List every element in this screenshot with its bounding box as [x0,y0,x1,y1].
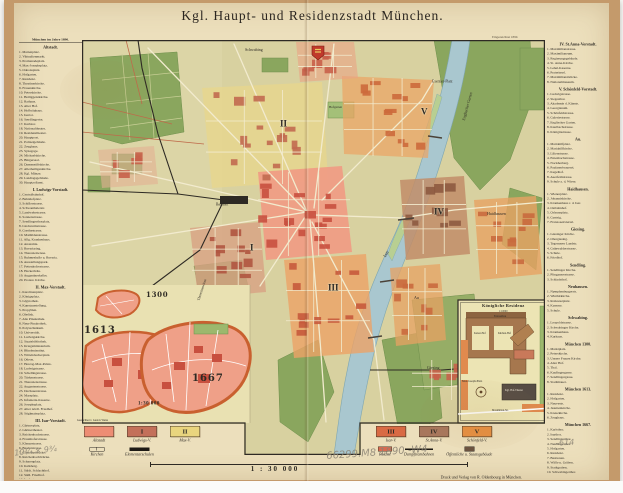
legend-label: Isar-V. [386,438,397,443]
legend-swatch: IIIIsar-V. [376,426,406,443]
legend-label: Ludwigs-V. [133,438,151,443]
fold-crease [304,0,309,481]
map-title: Kgl. Haupt- und Residenzstadt München. [120,8,505,24]
map-label: 1:10000 [499,310,508,313]
map-label: Gezeichnet v. Gustav Weiss [77,419,108,422]
legend-color-box: III [376,426,406,437]
legend-label: St.Anna-V. [426,438,443,443]
district-numeral: V [421,108,428,117]
index-entry: 8. Nationalmuseum. [547,80,609,85]
street-index-left: München im Jahre 1890.Altstadt.1. Marien… [19,37,82,479]
index-entry: 13. Isarlust. [19,478,82,480]
index-entry: 6. Zeughaus. [547,416,609,421]
index-header: München im Jahre 1890. [19,37,82,43]
scale-text: 1 : 30 000 [200,465,350,473]
map-label: 1300 [146,292,168,299]
district-numeral: II [280,120,287,129]
map-label: 1667 [192,374,224,384]
map-label: Kaiser-Hof [474,332,486,335]
pubbox-icon [464,447,474,452]
index-entry: 4. Kurhaus. [547,335,609,340]
map-label: Giesing [427,366,439,370]
legend-label: Elementarschulen [125,452,154,457]
map-label: Exerzier-Platz [432,80,453,84]
map-label: Königliche Residenz [482,304,524,308]
district-numeral: I [250,244,254,253]
legend-color-box [84,426,114,437]
map-label: Au [414,296,419,300]
legend-swatch: VSchönfeld-V. [462,426,492,443]
pencil-annotation: -614 [556,439,575,448]
index-entry: 7. Franzosenviertel. [547,220,609,225]
city-map-artwork [82,40,545,455]
legend-label: Max-V. [179,438,190,443]
legend-label: Altstadt [93,438,105,443]
map-label: Haidhausen [487,212,506,216]
map-sheet-photo: Kgl. Haupt- und Residenzstadt München. E… [0,0,623,493]
legend-swatch: IVSt.Anna-V. [419,426,449,443]
map-label: Schwabing [245,48,263,52]
legend-swatch: Altstadt [84,426,114,443]
legend-swatch: IIMax-V. [170,426,200,443]
index-entry: 9. Schule a. d. Wiese. [547,180,609,185]
imprint: Druck und Verlag von R. Oldenbourg in Mü… [400,469,560,487]
index-entry: 20. Protest. Kirche. [19,278,82,283]
legend-label: Schönfeld-V. [467,438,487,443]
growth-inset [82,285,250,423]
district-numeral: IV [434,208,444,217]
legend-label: Öffentliche u. Staatsgebäude [446,452,492,457]
index-entry: 3. Schlachthof. [547,277,609,282]
legend-symbol: Öffentliche u. Staatsgebäude [446,447,492,457]
blackbar-icon [129,447,149,451]
map-label: Hofgarten [329,106,342,109]
legend-swatch: ILudwigs-V. [127,426,157,443]
index-entry: 28. Stiglmaierplatz. [19,412,82,417]
residenz-inset [458,300,545,423]
legend-symbol: Elementarschulen [125,447,154,457]
map-label: Max-Joseph-Platz [462,380,482,383]
index-entry: 5. Schule. [547,308,609,313]
street-index-right: IV. St.Anna-Vorstadt.1. Maximilianstrass… [547,37,609,481]
legend-color-box: II [170,426,200,437]
map-label: Bahnhof [216,203,228,207]
legend-label: Kirchen [91,452,104,457]
index-entry: 6. Friedhof. [547,256,609,261]
map-label: Maximilian-Str. [492,409,509,412]
map-label: Küchen-Hof [498,332,511,335]
map-label: Festsaalbau [494,315,506,318]
map-label: Kgl. Hof-Theater [505,389,523,392]
legend-color-box: V [462,426,492,437]
legend-color-box: I [127,426,157,437]
legend-symbol: Kirchen [89,447,105,457]
map-label: 1:30 000 [138,401,160,406]
legend-color-box: IV [419,426,449,437]
index-entry: 9. Königinstrasse. [547,130,609,135]
church-icon [89,447,105,452]
city-map [82,40,545,455]
legend-left: AltstadtILudwigs-V.IIMax-V. KirchenEleme… [84,426,234,462]
map-label: 1613 [84,326,116,336]
index-entry: 8. Stadtmauer. [547,380,609,385]
index-entry: 30. Hauptzollamt. [19,181,82,186]
district-numeral: III [328,284,339,293]
